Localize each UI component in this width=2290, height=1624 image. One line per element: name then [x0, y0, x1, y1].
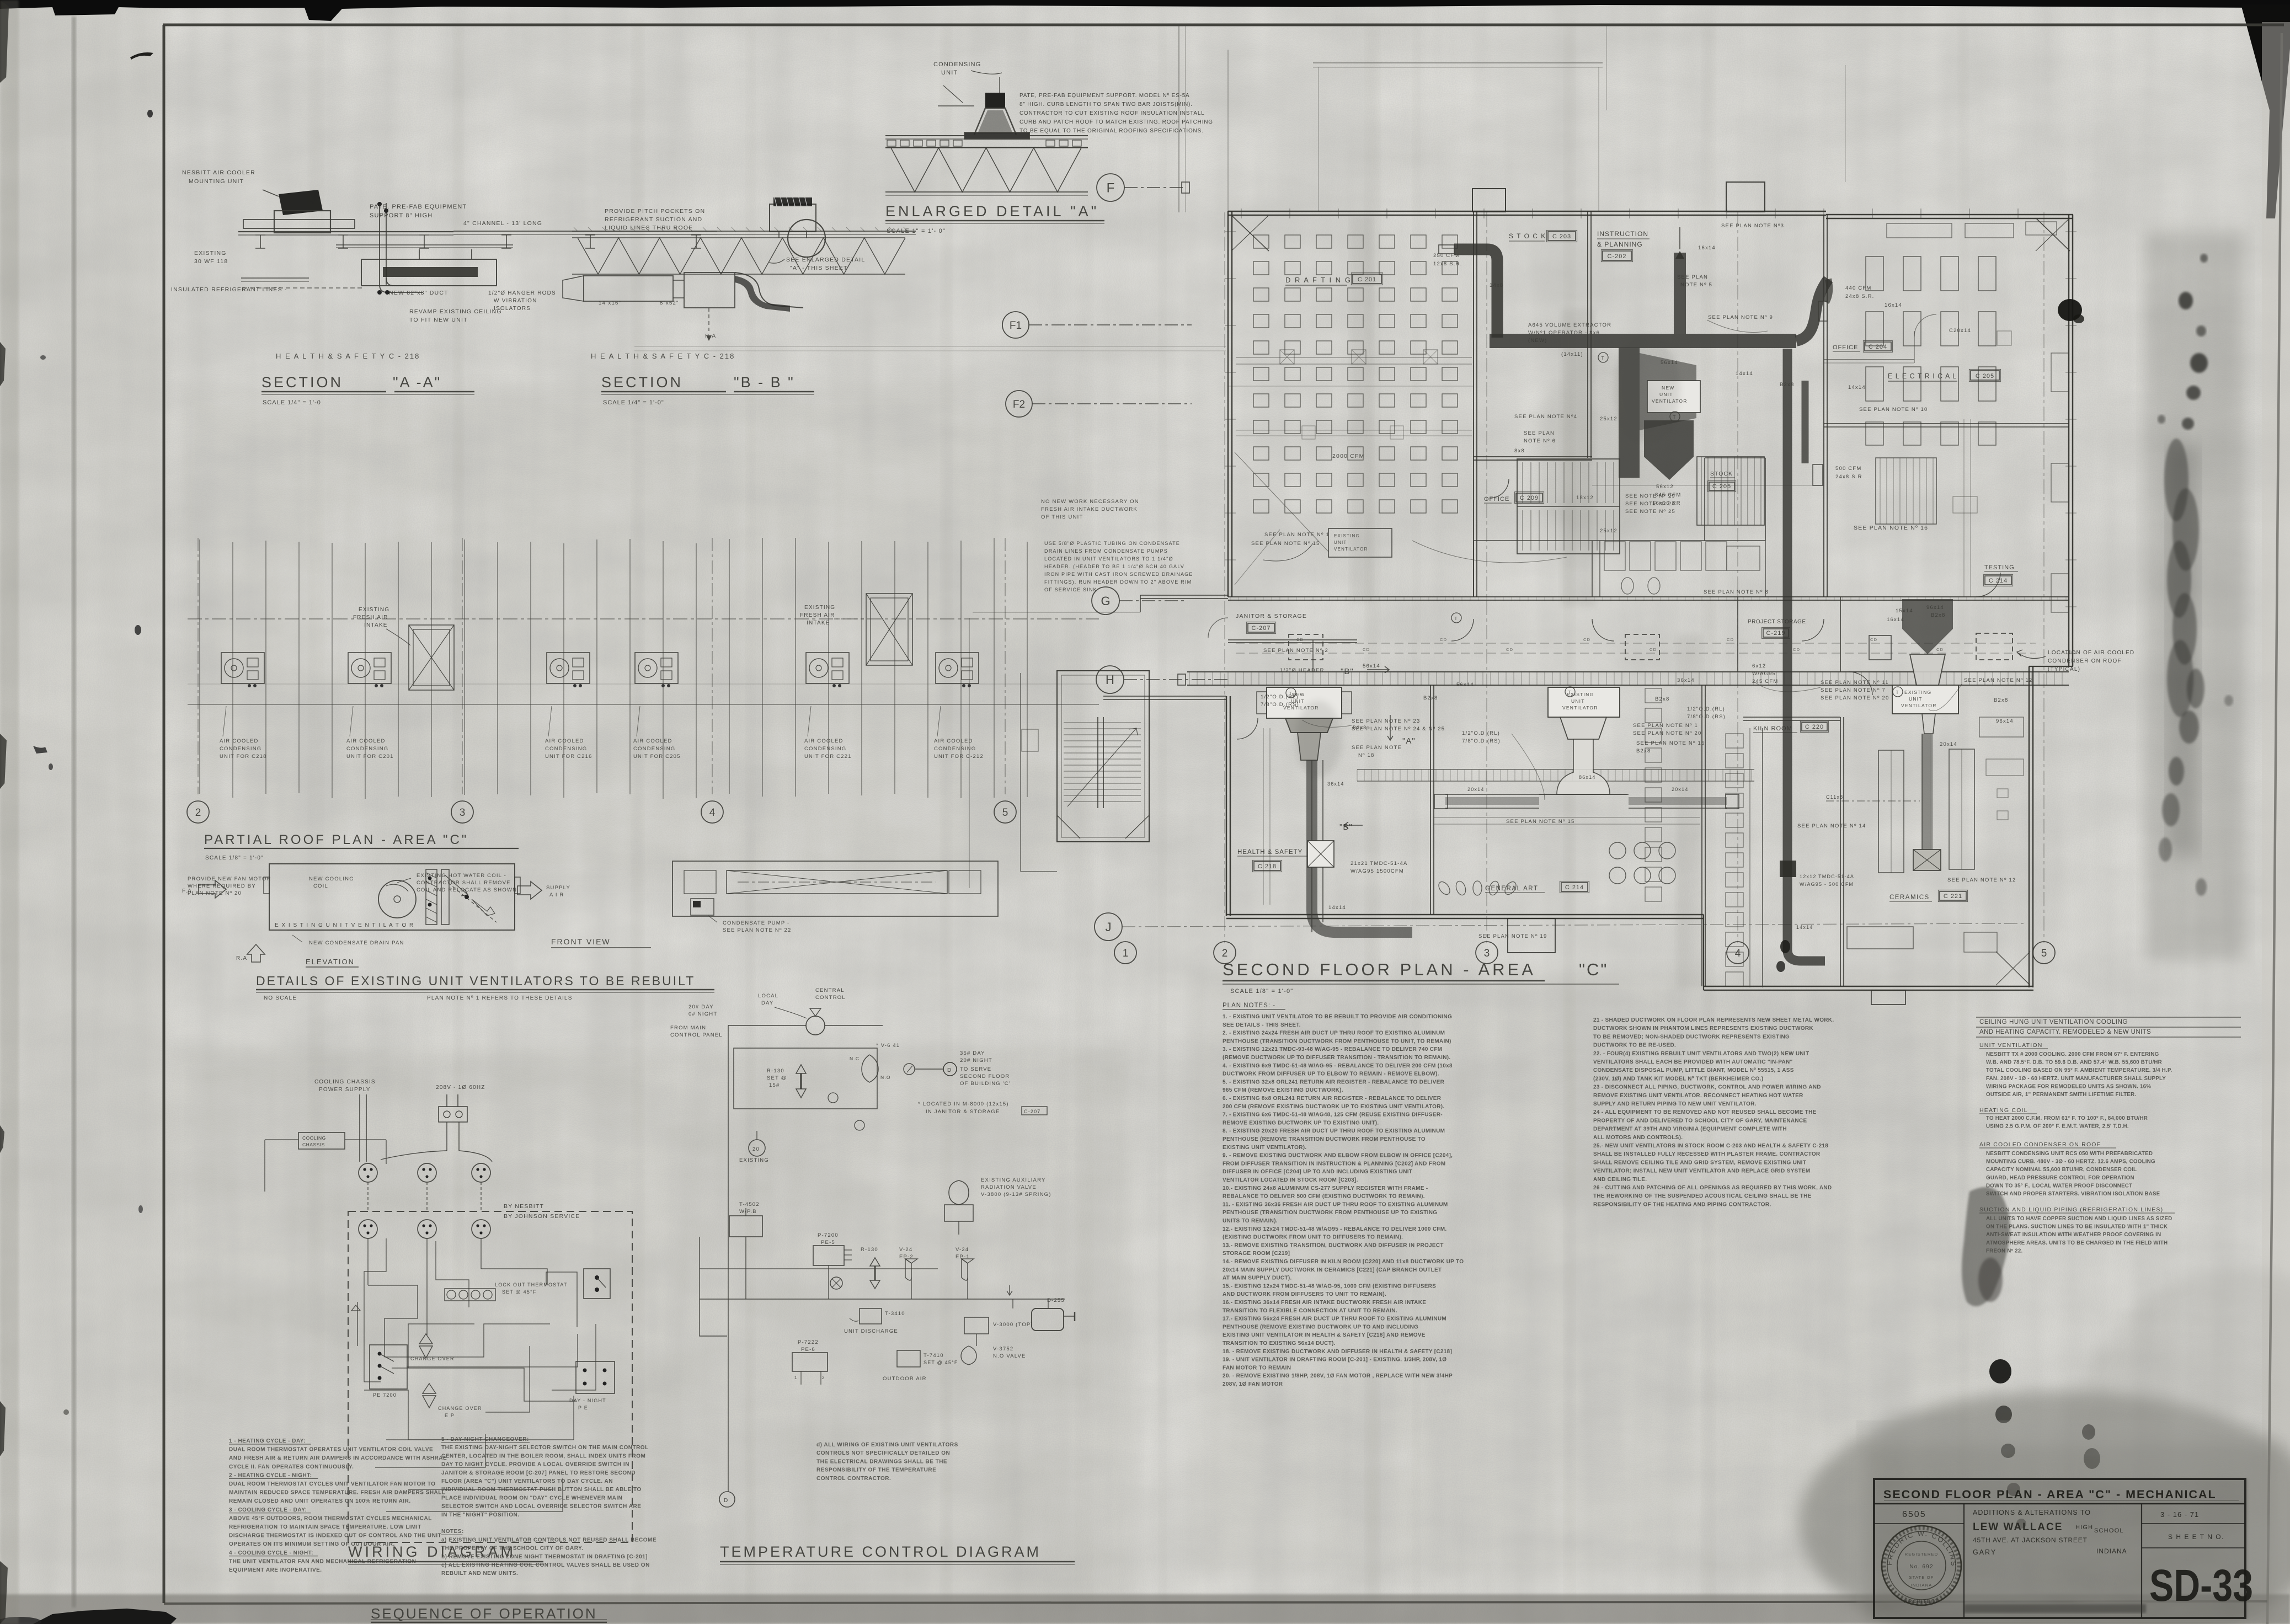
svg-text:C 221: C 221 — [1944, 893, 1962, 900]
svg-text:5 - DAY-NIGHT CHANGEOVER:: 5 - DAY-NIGHT CHANGEOVER: — [441, 1436, 529, 1443]
svg-text:12.- EXISTING 12x24 TMDC-51-4: 12.- EXISTING 12x24 TMDC-51-48 W/AG95 - … — [1223, 1226, 1446, 1232]
svg-text:LOCK OUT THERMOSTAT: LOCK OUT THERMOSTAT — [495, 1282, 568, 1288]
svg-text:PLACE INDIVIDUAL ROOM ON "DAY": PLACE INDIVIDUAL ROOM ON "DAY" CYCLE WHE… — [441, 1495, 622, 1501]
svg-text:1 - HEATING CYCLE - DAY:: 1 - HEATING CYCLE - DAY: — [229, 1438, 306, 1444]
svg-text:CONDENSING: CONDENSING — [346, 746, 388, 752]
svg-text:ABOVE 45°F OUTDOORS, ROOM THER: ABOVE 45°F OUTDOORS, ROOM THERMOSTAT CYC… — [229, 1515, 432, 1521]
svg-text:CD: CD — [1870, 637, 1877, 642]
svg-text:NOTES:: NOTES: — [441, 1529, 464, 1535]
svg-text:C11x8: C11x8 — [1826, 794, 1843, 800]
svg-text:MOUNTING CURB. 480V - 3Ø -: MOUNTING CURB. 480V - 3Ø - 60 HERTZ. 12.… — [1986, 1159, 2155, 1165]
svg-text:INTAKE: INTAKE — [807, 620, 830, 626]
svg-text:C-219: C-219 — [1766, 630, 1786, 637]
svg-text:TRANSITION TO FLEXIBLE CONNECT: TRANSITION TO FLEXIBLE CONNECTION AT UNI… — [1223, 1308, 1397, 1314]
svg-text:LOCAL: LOCAL — [758, 993, 778, 999]
svg-text:CEILING HUNG UNIT VENTILATI: CEILING HUNG UNIT VENTILATION COOLING — [1979, 1019, 2128, 1025]
svg-text:REGISTERED: REGISTERED — [1905, 1552, 1939, 1557]
svg-text:SEE PLAN NOTE Nº 23: SEE PLAN NOTE Nº 23 — [1352, 718, 1420, 724]
svg-text:250 CFM: 250 CFM — [1433, 253, 1459, 259]
svg-text:SUPPLY: SUPPLY — [546, 885, 570, 891]
svg-text:W/P.B: W/P.B — [739, 1209, 757, 1215]
svg-text:THE EXISTING DAY-NIGHT SELECTO: THE EXISTING DAY-NIGHT SELECTOR SWITCH O… — [441, 1445, 649, 1451]
svg-text:UNIT VENTILATION: UNIT VENTILATION — [1979, 1042, 2043, 1049]
svg-text:16x14: 16x14 — [1887, 617, 1904, 623]
svg-text:C-207: C-207 — [1024, 1109, 1041, 1114]
svg-text:C20x14: C20x14 — [1949, 328, 1971, 334]
svg-text:F: F — [1107, 181, 1115, 196]
svg-text:SUPPLY AND RETURN PIPING TO NE: SUPPLY AND RETURN PIPING TO NEW UNIT VEN… — [1593, 1101, 1757, 1107]
svg-text:96x14: 96x14 — [1926, 605, 1944, 611]
svg-text:CONDENSING: CONDENSING — [545, 746, 587, 752]
svg-text:15.- EXISTING 12x24 TMDC-51-4: 15.- EXISTING 12x24 TMDC-51-48 W/AG-95, … — [1223, 1283, 1436, 1289]
svg-text:AND DUCTWORK FROM DIFFUSERS TO: AND DUCTWORK FROM DIFFUSERS TO UNIT TO R… — [1223, 1291, 1386, 1297]
svg-text:P E: P E — [578, 1405, 588, 1411]
svg-text:F2: F2 — [1013, 399, 1025, 410]
svg-text:1: 1 — [1123, 948, 1129, 959]
svg-text:NESBITT CONDENSING UNIT RCS: NESBITT CONDENSING UNIT RCS 050 WITH PRE… — [1986, 1151, 2153, 1157]
svg-text:T: T — [1568, 690, 1572, 695]
svg-text:"B - B ": "B - B " — [734, 374, 795, 391]
svg-text:14x8: 14x8 — [1490, 282, 1503, 289]
svg-text:UNIT FOR C221: UNIT FOR C221 — [804, 754, 852, 760]
svg-text:1: 1 — [794, 1375, 798, 1380]
svg-text:"A": "A" — [1402, 736, 1416, 746]
svg-text:208V - 1Ø 60HZ: 208V - 1Ø 60HZ — [436, 1085, 485, 1091]
svg-text:EXISTING AUXILIARY: EXISTING AUXILIARY — [981, 1177, 1046, 1183]
svg-text:15#: 15# — [769, 1082, 780, 1088]
svg-text:PLAN NOTES: -: PLAN NOTES: - — [1223, 1002, 1275, 1009]
svg-text:1/2"Ø HEADER: 1/2"Ø HEADER — [1280, 667, 1325, 674]
svg-text:GARY: GARY — [1973, 1548, 1997, 1556]
svg-text:ELEVATION: ELEVATION — [306, 958, 355, 966]
svg-text:ALL UNITS TO HAVE COPPER SUCTI: ALL UNITS TO HAVE COPPER SUCTION AND LIQ… — [1986, 1216, 2172, 1222]
svg-text:REFRIGERANT SUCTION AND: REFRIGERANT SUCTION AND — [605, 216, 702, 223]
svg-text:CONTROL PANEL: CONTROL PANEL — [670, 1032, 723, 1038]
svg-text:CONDENSING: CONDENSING — [804, 746, 846, 752]
svg-text:SEE PLAN NOTE Nº 19: SEE PLAN NOTE Nº 19 — [1478, 933, 1547, 939]
svg-text:MOUNTING UNIT: MOUNTING UNIT — [189, 178, 244, 185]
svg-text:CD: CD — [1936, 647, 1944, 652]
svg-text:AND FRESH AIR & RETURN AIR DAM: AND FRESH AIR & RETURN AIR DAMPERS IN AC… — [229, 1455, 447, 1461]
svg-text:CAPACITY NOMINAL 55,600 BTU: CAPACITY NOMINAL 55,600 BTU/HR, CONDENSE… — [1986, 1167, 2137, 1173]
svg-text:2. - EXISTING 24x24 FRESH AIR: 2. - EXISTING 24x24 FRESH AIR DUCT UP TH… — [1223, 1030, 1445, 1037]
svg-text:SHALL REMOVE CEILING TILE AND: SHALL REMOVE CEILING TILE AND GRID SYSTE… — [1593, 1160, 1806, 1166]
svg-text:OFFICE: OFFICE — [1833, 344, 1858, 351]
svg-text:EXISTING: EXISTING — [1904, 690, 1931, 695]
svg-text:1/2"O.D.(RL): 1/2"O.D.(RL) — [1261, 694, 1299, 700]
svg-text:CONTROLS NOT SPECIFICALLY DETA: CONTROLS NOT SPECIFICALLY DETAILED ON — [816, 1450, 950, 1456]
svg-text:ATMOSPHERE AREAS. UNITS TO BE: ATMOSPHERE AREAS. UNITS TO BE CHARGED IN… — [1986, 1240, 2168, 1246]
svg-text:SEE PLAN NOTE Nº 22: SEE PLAN NOTE Nº 22 — [723, 927, 791, 933]
svg-text:NEW COOLING: NEW COOLING — [309, 876, 354, 882]
svg-text:REBUILT AND NEW UNITS.: REBUILT AND NEW UNITS. — [441, 1570, 518, 1577]
svg-text:SCALE 1/8" = 1'-0": SCALE 1/8" = 1'-0" — [1230, 988, 1293, 995]
svg-text:SD-33: SD-33 — [2149, 1561, 2253, 1611]
svg-text:COIL: COIL — [313, 883, 328, 889]
svg-text:IN JANITOR & STORAGE: IN JANITOR & STORAGE — [926, 1109, 1000, 1115]
svg-text:"B": "B" — [1341, 667, 1354, 676]
svg-text:UNIT: UNIT — [1334, 540, 1347, 545]
svg-text:SECTION: SECTION — [601, 374, 683, 391]
svg-text:PATE, PRE-FAB EQUIPMENT SUPPOR: PATE, PRE-FAB EQUIPMENT SUPPORT. MODEL N… — [1019, 93, 1190, 99]
svg-text:14x14: 14x14 — [1736, 371, 1753, 377]
svg-text:7/8"O.D.(RS): 7/8"O.D.(RS) — [1261, 702, 1299, 708]
svg-text:INDIANA: INDIANA — [2096, 1547, 2127, 1555]
svg-text:36x14: 36x14 — [1327, 781, 1344, 787]
svg-text:PE 7200: PE 7200 — [373, 1392, 397, 1398]
svg-text:SEE PLAN NOTE Nº3: SEE PLAN NOTE Nº3 — [1721, 223, 1784, 229]
svg-text:CONTRACTOR TO CUT EXISTING ROO: CONTRACTOR TO CUT EXISTING ROOF INSULATI… — [1019, 110, 1205, 116]
svg-text:LEW WALLACE: LEW WALLACE — [1973, 1521, 2063, 1533]
svg-text:21x21 TMDC-51-4A: 21x21 TMDC-51-4A — [1350, 861, 1408, 867]
svg-text:CD: CD — [1583, 637, 1590, 642]
svg-text:AND CEILING TILE.: AND CEILING TILE. — [1593, 1177, 1647, 1183]
svg-text:SET @ 45°F: SET @ 45°F — [502, 1289, 537, 1295]
svg-text:NEW CONDENSATE DRAIN PAN: NEW CONDENSATE DRAIN PAN — [309, 940, 404, 946]
svg-text:SEE PLAN NOTE Nº 20: SEE PLAN NOTE Nº 20 — [1821, 695, 1889, 701]
svg-text:OUTSIDE AIR, 1" PERMANENT S: OUTSIDE AIR, 1" PERMANENT SMITH LIFETIME… — [1986, 1092, 2136, 1098]
svg-text:NESBITT TX # 2000 COOLING. 2: NESBITT TX # 2000 COOLING. 2000 CFM FROM… — [1986, 1051, 2159, 1057]
svg-text:REVAMP EXISTING CEILING: REVAMP EXISTING CEILING — [409, 308, 502, 315]
svg-text:USE 5/8"Ø PLASTIC TUBING ON CO: USE 5/8"Ø PLASTIC TUBING ON CONDENSATE — [1044, 541, 1180, 546]
svg-text:2: 2 — [1222, 948, 1228, 959]
svg-text:Nº 18: Nº 18 — [1358, 752, 1375, 758]
svg-text:20# DAY: 20# DAY — [688, 1004, 714, 1010]
svg-text:DUCTWORK FROM DIFFUSER UP TO E: DUCTWORK FROM DIFFUSER UP TO ELBOW TO RE… — [1223, 1071, 1439, 1077]
svg-text:T-4502: T-4502 — [739, 1201, 760, 1208]
svg-text:PROPERTY OF AND DELIVERED TO S: PROPERTY OF AND DELIVERED TO SCHOOL CITY… — [1593, 1118, 1807, 1124]
svg-text:B2x8: B2x8 — [1655, 696, 1669, 702]
svg-text:FLOOR (AREA "C") UNIT VENTILAT: FLOOR (AREA "C") UNIT VENTILATORS TO DAY… — [441, 1478, 613, 1484]
svg-text:OF SERVICE SINK.: OF SERVICE SINK. — [1044, 587, 1099, 592]
svg-text:SEE PLAN NOTE Nº 12: SEE PLAN NOTE Nº 12 — [1964, 677, 2032, 683]
svg-text:"A" - THIS SHEET: "A" - THIS SHEET — [790, 265, 848, 271]
svg-text:SWITCH AND PROPER STARTERS.: SWITCH AND PROPER STARTERS. VIBRATION IS… — [1986, 1191, 2160, 1197]
svg-text:"C": "C" — [1579, 960, 1608, 979]
svg-text:12x8 S.R.: 12x8 S.R. — [1433, 261, 1462, 267]
svg-text:TO BE REMOVED; NON-SHADED DUCT: TO BE REMOVED; NON-SHADED DUCTWORK REPRE… — [1593, 1034, 1790, 1040]
svg-text:3 - COOLING CYCLE - DAY:: 3 - COOLING CYCLE - DAY: — [229, 1507, 307, 1513]
svg-text:CHANGE OVER: CHANGE OVER — [410, 1356, 455, 1361]
svg-text:CONTRACTOR SHALL REMOVE: CONTRACTOR SHALL REMOVE — [417, 880, 511, 886]
svg-text:THE REWORKING OF THE SUSPENDED: THE REWORKING OF THE SUSPENDED ACOUSTICA… — [1593, 1193, 1812, 1199]
svg-text:DRAIN LINES FROM CONDENSATE PU: DRAIN LINES FROM CONDENSATE PUMPS — [1044, 548, 1168, 554]
svg-text:DIFFUSER IN OFFICE [C204] UP T: DIFFUSER IN OFFICE [C204] UP TO AND INCL… — [1223, 1169, 1412, 1175]
svg-text:5: 5 — [1002, 807, 1008, 819]
svg-text:HIGH: HIGH — [2075, 1524, 2093, 1531]
svg-text:T: T — [1896, 690, 1899, 695]
svg-text:FROM MAIN: FROM MAIN — [670, 1025, 706, 1031]
svg-text:SCALE 1/8" = 1'-0": SCALE 1/8" = 1'-0" — [205, 855, 264, 861]
svg-text:EXISTING UNIT VENTILATOR IN HE: EXISTING UNIT VENTILATOR IN HEALTH & SAF… — [1223, 1332, 1426, 1338]
svg-text:FAN. 208V - 1Ø - 60 HERTZ.: FAN. 208V - 1Ø - 60 HERTZ. UNIT MANUFACT… — [1986, 1076, 2166, 1082]
svg-text:8" HIGH. CURB LENGTH TO SPAN T: 8" HIGH. CURB LENGTH TO SPAN TWO BAR JOI… — [1019, 101, 1193, 108]
svg-text:CD: CD — [1506, 647, 1513, 652]
svg-text:EQUIPMENT ARE INOPERATIVE.: EQUIPMENT ARE INOPERATIVE. — [229, 1567, 322, 1573]
svg-text:SEE PLAN NOTE Nº 9: SEE PLAN NOTE Nº 9 — [1708, 314, 1773, 320]
svg-text:PENTHOUSE (REMOVE EXISTING DUC: PENTHOUSE (REMOVE EXISTING DUCTWORK UP T… — [1223, 1324, 1418, 1330]
svg-text:245 CFM: 245 CFM — [1752, 679, 1778, 685]
svg-text:5: 5 — [2041, 948, 2047, 959]
svg-text:REMOVE EXISTING UNIT VENTILATO: REMOVE EXISTING UNIT VENTILATOR. RECONNE… — [1593, 1093, 1803, 1099]
svg-text:CONDENSING: CONDENSING — [633, 746, 675, 752]
svg-text:COIL AND RELOCATE AS SHOWN: COIL AND RELOCATE AS SHOWN — [417, 887, 517, 893]
svg-text:45TH AVE. AT JACKSON STR: 45TH AVE. AT JACKSON STREET — [1973, 1536, 2088, 1544]
svg-text:3. - EXISTING 12x21 TMDC-93-: 3. - EXISTING 12x21 TMDC-93-48 W/AG-95 -… — [1223, 1046, 1442, 1053]
svg-text:(EXISTING DUCTWORK FROM UNIT T: (EXISTING DUCTWORK FROM UNIT TO DIFFUSER… — [1223, 1235, 1403, 1241]
svg-text:OF THIS UNIT: OF THIS UNIT — [1041, 514, 1083, 520]
svg-text:SCHOOL: SCHOOL — [2094, 1527, 2124, 1534]
svg-text:REBALANCE TO DELIVER 500 CFM (: REBALANCE TO DELIVER 500 CFM (EXISTING D… — [1223, 1194, 1425, 1200]
svg-text:TO BE EQUAL TO THE ORIGINAL RO: TO BE EQUAL TO THE ORIGINAL ROOFING SPEC… — [1019, 128, 1204, 134]
svg-text:18. - REMOVE EXISTING DUCTWORK: 18. - REMOVE EXISTING DUCTWORK AND DIFFU… — [1223, 1349, 1452, 1355]
svg-text:SEE PLAN NOTE Nº 14: SEE PLAN NOTE Nº 14 — [1797, 823, 1866, 829]
svg-text:6505: 6505 — [1902, 1510, 1926, 1519]
svg-text:16x16 RR: 16x16 RR — [1652, 500, 1681, 506]
svg-text:CHANGE OVER: CHANGE OVER — [438, 1406, 482, 1411]
svg-text:COOLING CHASSIS: COOLING CHASSIS — [314, 1079, 376, 1085]
svg-text:INDIANA: INDIANA — [1911, 1583, 1933, 1588]
svg-text:12x12 TMDC-51-4A: 12x12 TMDC-51-4A — [1800, 874, 1854, 879]
svg-text:3: 3 — [1484, 948, 1490, 959]
svg-text:SECTION: SECTION — [261, 374, 343, 391]
svg-text:208V, 1Ø FAN MOTOR: 208V, 1Ø FAN MOTOR — [1223, 1381, 1283, 1387]
svg-text:T: T — [1455, 616, 1458, 621]
svg-text:a) EXISTING UNIT VENTILATOR CO: a) EXISTING UNIT VENTILATOR CONTROLS NOT… — [441, 1537, 656, 1543]
svg-text:INSULATED REFRIGERANT LINES -: INSULATED REFRIGERANT LINES - — [171, 286, 287, 293]
svg-text:SEE PLAN: SEE PLAN — [1677, 274, 1708, 280]
svg-text:C 205: C 205 — [1712, 483, 1731, 490]
svg-text:DUCTWORK TO BE RE-USED.: DUCTWORK TO BE RE-USED. — [1593, 1043, 1676, 1049]
svg-text:56x14: 56x14 — [1363, 663, 1380, 669]
svg-text:D-255: D-255 — [1047, 1297, 1065, 1304]
svg-text:25.- NEW UNIT VENTILATORS IN S: 25.- NEW UNIT VENTILATORS IN STOCK ROOM … — [1593, 1143, 1828, 1149]
svg-text:20# NIGHT: 20# NIGHT — [960, 1057, 992, 1064]
svg-text:UNIT FOR C201: UNIT FOR C201 — [346, 754, 394, 760]
svg-text:8"x52": 8"x52" — [660, 300, 679, 306]
svg-text:C 218: C 218 — [1258, 863, 1277, 870]
svg-text:"A -A": "A -A" — [393, 374, 441, 391]
svg-text:14x14: 14x14 — [1328, 905, 1346, 911]
svg-text:VENTILATOR LOCATED IN STOCK RO: VENTILATOR LOCATED IN STOCK ROOM [C203]. — [1223, 1177, 1358, 1183]
svg-text:SET @ 45°F: SET @ 45°F — [924, 1360, 958, 1365]
svg-text:IRON PIPE WITH CAST IRON SCREW: IRON PIPE WITH CAST IRON SCREWED DRAINAG… — [1044, 571, 1193, 577]
svg-text:3: 3 — [460, 807, 466, 819]
svg-text:SEE PLAN NOTE Nº 11: SEE PLAN NOTE Nº 11 — [1821, 680, 1889, 686]
svg-text:PROJECT STORAGE: PROJECT STORAGE — [1748, 619, 1806, 625]
svg-text:4: 4 — [709, 807, 716, 819]
svg-text:AIR COOLED: AIR COOLED — [934, 738, 973, 744]
svg-text:ADDITIONS & ALTERATIONS TO: ADDITIONS & ALTERATIONS TO — [1973, 1509, 2091, 1516]
svg-text:B2x8: B2x8 — [1780, 382, 1794, 388]
svg-text:CURB AND PATCH ROOF TO MATCH E: CURB AND PATCH ROOF TO MATCH EXISTING. R… — [1019, 119, 1213, 125]
svg-text:HEATING COIL: HEATING COIL — [1979, 1107, 2028, 1114]
svg-text:500 CFM: 500 CFM — [1835, 466, 1861, 472]
svg-text:E X I S T I N G U N I T V E: E X I S T I N G U N I T V E N T I L A T … — [275, 922, 414, 928]
svg-text:DISCHARGE THERMOSTAT IS INDEXE: DISCHARGE THERMOSTAT IS INDEXED OUT OF C… — [229, 1533, 441, 1539]
svg-text:TOTAL COOLING BASED ON 95° F.: TOTAL COOLING BASED ON 95° F. AMBIENT TE… — [1986, 1067, 2172, 1073]
svg-text:20x14: 20x14 — [1940, 741, 1957, 747]
svg-text:ANTI-SWEAT INSULATION WITH WEA: ANTI-SWEAT INSULATION WITH WEATHER PROOF… — [1986, 1232, 2161, 1238]
svg-text:V-24: V-24 — [955, 1247, 969, 1253]
svg-text:V-3800 (9-13# SPRING): V-3800 (9-13# SPRING) — [981, 1192, 1051, 1198]
svg-text:TRANSITION TO EXISTING 56x14 D: TRANSITION TO EXISTING 56x14 DUCT). — [1223, 1340, 1336, 1347]
svg-text:C 214: C 214 — [1565, 884, 1584, 891]
svg-text:EXISTING: EXISTING — [359, 607, 389, 613]
svg-text:CERAMICS: CERAMICS — [1889, 894, 1930, 901]
svg-text:LOCATION OF AIR COOLED: LOCATION OF AIR COOLED — [2048, 650, 2134, 656]
svg-text:17.- EXISTING 56x24 FRESH AIR: 17.- EXISTING 56x24 FRESH AIR DUCT UP TH… — [1223, 1316, 1446, 1322]
svg-text:UNIT: UNIT — [1909, 696, 1923, 702]
svg-text:R.A: R.A — [236, 955, 247, 961]
svg-text:PROVIDE PITCH POCKETS ON: PROVIDE PITCH POCKETS ON — [605, 208, 705, 215]
svg-text:20x14: 20x14 — [1467, 787, 1485, 792]
svg-text:FROM DIFFUSER TRANSITION IN IN: FROM DIFFUSER TRANSITION IN INSTRUCTION … — [1223, 1161, 1445, 1167]
svg-text:96x14: 96x14 — [1996, 718, 2014, 724]
svg-text:W/AG95 - 500 CFM: W/AG95 - 500 CFM — [1800, 882, 1854, 887]
svg-text:WIRING PACKAGE FOR REMODELE: WIRING PACKAGE FOR REMODELED UNITS AS SH… — [1986, 1083, 2151, 1089]
svg-text:SET @: SET @ — [767, 1075, 787, 1081]
svg-text:SEE PLAN NOTE Nº 1: SEE PLAN NOTE Nº 1 — [1264, 532, 1330, 538]
svg-text:(230V, 1Ø) AND TANK KIT MODEL: (230V, 1Ø) AND TANK KIT MODEL Nº TKT (BE… — [1593, 1076, 1763, 1082]
svg-text:A I R: A I R — [549, 892, 564, 898]
svg-text:DUCTWORK SHOWN IN PHANTOM LINE: DUCTWORK SHOWN IN PHANTOM LINES REPRESEN… — [1593, 1025, 1813, 1032]
svg-text:PE-5: PE-5 — [821, 1240, 835, 1246]
svg-text:UNIT: UNIT — [941, 70, 958, 76]
svg-text:EXISTING: EXISTING — [739, 1157, 769, 1163]
svg-text:POWER SUPPLY: POWER SUPPLY — [319, 1087, 371, 1093]
svg-text:1/2"Ø HANGER RODS: 1/2"Ø HANGER RODS — [488, 290, 556, 296]
svg-text:30 WF 118: 30 WF 118 — [194, 258, 228, 265]
svg-text:V-3752: V-3752 — [993, 1346, 1013, 1352]
svg-text:RADIATION VALVE: RADIATION VALVE — [981, 1184, 1037, 1190]
svg-text:SHALL BE INSTALLED FULLY RECES: SHALL BE INSTALLED FULLY RECESSED WITH P… — [1593, 1151, 1821, 1157]
svg-text:c) ALL EXISTING HEATING COIL C: c) ALL EXISTING HEATING COIL CONTROL VAL… — [441, 1562, 650, 1568]
svg-text:THE PROPERTY OF THE SCHOOL CIT: THE PROPERTY OF THE SCHOOL CITY OF GARY. — [441, 1546, 583, 1552]
svg-text:AIR COOLED: AIR COOLED — [346, 738, 386, 744]
svg-text:NO NEW WORK NECESSARY ON: NO NEW WORK NECESSARY ON — [1041, 499, 1139, 505]
svg-text:D R A F T I N G: D R A F T I N G — [1285, 276, 1352, 284]
svg-text:UNIT: UNIT — [1571, 698, 1585, 704]
svg-text:INSTRUCTION: INSTRUCTION — [1597, 230, 1648, 238]
svg-text:14.- REMOVE EXISTING DIFFUSER: 14.- REMOVE EXISTING DIFFUSER IN KILN RO… — [1223, 1259, 1464, 1265]
svg-text:200 CFM (REMOVE EXISTING DUCTW: 200 CFM (REMOVE EXISTING DUCTWORK UP TO … — [1223, 1104, 1444, 1110]
svg-text:23 - DISCONNECT ALL PIPING, DU: 23 - DISCONNECT ALL PIPING, DUCTWORK, CO… — [1593, 1085, 1821, 1091]
svg-text:THE UNIT VENTILATOR FAN AND ME: THE UNIT VENTILATOR FAN AND MECHANICAL R… — [229, 1558, 416, 1564]
svg-text:T-7410: T-7410 — [924, 1353, 944, 1359]
svg-text:& PLANNING: & PLANNING — [1597, 241, 1643, 248]
svg-text:UNITS TO REMAIN).: UNITS TO REMAIN). — [1223, 1218, 1278, 1224]
svg-text:ENLARGED DETAIL "A": ENLARGED DETAIL "A" — [885, 203, 1099, 220]
svg-text:SCALE 1/4" = 1'-0": SCALE 1/4" = 1'-0" — [603, 399, 664, 406]
svg-text:C 203: C 203 — [1552, 233, 1571, 240]
svg-text:ARCHITECT: ARCHITECT — [1904, 1599, 1939, 1604]
svg-text:PATE, PRE-FAB EQUIPMENT: PATE, PRE-FAB EQUIPMENT — [370, 204, 467, 210]
svg-text:SECOND FLOOR: SECOND FLOOR — [960, 1073, 1010, 1080]
svg-text:E P: E P — [445, 1413, 455, 1418]
svg-text:SEE PLAN NOTE: SEE PLAN NOTE — [1352, 745, 1402, 751]
svg-text:C 220: C 220 — [1805, 724, 1824, 730]
svg-text:JANITOR & STORAGE ROOM [C-207]: JANITOR & STORAGE ROOM [C-207] PANEL TO … — [441, 1470, 636, 1476]
svg-text:UNIT FOR C205: UNIT FOR C205 — [633, 754, 681, 760]
svg-text:EXISTING: EXISTING — [804, 605, 835, 611]
svg-text:2: 2 — [195, 807, 201, 819]
svg-text:SEE PLAN NOTE Nº 12: SEE PLAN NOTE Nº 12 — [1947, 877, 2016, 883]
svg-text:965 CFM (REMOVE EXISTING DUCTW: 965 CFM (REMOVE EXISTING DUCTWORK). — [1223, 1087, 1343, 1093]
svg-text:BY JOHNSON SERVICE: BY JOHNSON SERVICE — [504, 1213, 580, 1220]
svg-text:b) REMOVE EXISTING ZONE NIGHT: b) REMOVE EXISTING ZONE NIGHT THERMOSTAT… — [441, 1554, 648, 1560]
svg-text:T: T — [1289, 691, 1293, 696]
svg-text:2: 2 — [822, 1375, 825, 1380]
svg-text:56x14: 56x14 — [1456, 682, 1474, 688]
svg-text:CONDENSING: CONDENSING — [933, 61, 981, 68]
svg-text:TEMPERATURE CONTROL DIAGRAM: TEMPERATURE CONTROL DIAGRAM — [720, 1543, 1041, 1560]
svg-text:440 CFM: 440 CFM — [1845, 285, 1871, 291]
svg-text:GENERAL ART: GENERAL ART — [1485, 885, 1538, 892]
svg-text:W.B. AND 78.5°F. D.B. TO 59.6: W.B. AND 78.5°F. D.B. TO 59.6 D.B. AND 5… — [1986, 1060, 2162, 1066]
svg-text:SUPPORT 8" HIGH: SUPPORT 8" HIGH — [370, 212, 433, 219]
svg-text:FITTINGS). RUN HEADER DOWN TO: FITTINGS). RUN HEADER DOWN TO 2" ABOVE R… — [1044, 579, 1192, 585]
svg-text:6. - EXISTING 8x8 ORL241 RETU: 6. - EXISTING 8x8 ORL241 RETURN AIR REGI… — [1223, 1096, 1442, 1102]
svg-text:FRONT VIEW: FRONT VIEW — [551, 937, 611, 946]
svg-text:CHASSIS: CHASSIS — [302, 1142, 325, 1147]
svg-text:B2x8: B2x8 — [1423, 695, 1438, 701]
svg-text:FRESH AIR: FRESH AIR — [353, 615, 388, 621]
svg-text:USING 2.5 G.P.M. OF 200° F: USING 2.5 G.P.M. OF 200° F. E.M.T. WATER… — [1986, 1124, 2129, 1130]
svg-text:7. - EXISTING 6x6 TMDC-51-48: 7. - EXISTING 6x6 TMDC-51-48 W/AG48, 125… — [1223, 1112, 1443, 1118]
svg-text:CONDENSATE PUMP -: CONDENSATE PUMP - — [723, 920, 789, 926]
svg-text:0# NIGHT: 0# NIGHT — [688, 1011, 717, 1017]
svg-text:8x8: 8x8 — [1514, 448, 1525, 454]
svg-text:AIR COOLED: AIR COOLED — [545, 738, 584, 744]
svg-text:CONTROL: CONTROL — [815, 995, 846, 1001]
svg-text:N.O: N.O — [880, 1075, 891, 1080]
svg-text:AT MAIN SUPPLY DUCT).: AT MAIN SUPPLY DUCT). — [1223, 1275, 1292, 1281]
svg-text:COOLING: COOLING — [302, 1135, 326, 1141]
svg-text:G: G — [1101, 594, 1110, 608]
svg-text:PE-6: PE-6 — [801, 1347, 815, 1353]
svg-text:TO FIT NEW UNIT: TO FIT NEW UNIT — [409, 317, 468, 323]
svg-text:20. - REMOVE EXISTING 1/8HP,: 20. - REMOVE EXISTING 1/8HP, 208V, 1Ø FA… — [1223, 1373, 1453, 1379]
svg-text:V-24: V-24 — [899, 1247, 912, 1253]
svg-text:CD: CD — [1440, 637, 1447, 642]
svg-text:SEE DETAILS - THIS SHEET.: SEE DETAILS - THIS SHEET. — [1223, 1022, 1301, 1028]
svg-text:1. - EXISTING UNIT VENTILATOR: 1. - EXISTING UNIT VENTILATOR TO BE REBU… — [1223, 1014, 1452, 1020]
svg-text:E L E C T R I C A L: E L E C T R I C A L — [1888, 372, 1957, 380]
svg-text:14x14: 14x14 — [1848, 384, 1866, 391]
svg-text:CONDENSATE DISPOSAL PUMP, LITT: CONDENSATE DISPOSAL PUMP, LITTLE GIANT, … — [1593, 1067, 1794, 1073]
svg-text:16x14: 16x14 — [1698, 245, 1716, 251]
svg-text:TO SERVE: TO SERVE — [960, 1066, 991, 1072]
svg-text:R-130: R-130 — [767, 1068, 784, 1074]
svg-text:16x14: 16x14 — [1885, 302, 1902, 308]
svg-text:SEE PLAN NOTE Nº 2: SEE PLAN NOTE Nº 2 — [1263, 648, 1328, 654]
svg-text:PENTHOUSE (TRANSITION DUCTWORK: PENTHOUSE (TRANSITION DUCTWORK FROM PENT… — [1223, 1210, 1437, 1216]
svg-text:D: D — [724, 1498, 728, 1504]
svg-text:OF BUILDING 'C': OF BUILDING 'C' — [960, 1081, 1011, 1087]
svg-text:PENTHOUSE (TRANSITION DUCTWORK: PENTHOUSE (TRANSITION DUCTWORK FROM PENT… — [1223, 1038, 1451, 1044]
svg-text:ALL MOTORS AND CONTROLS).: ALL MOTORS AND CONTROLS). — [1593, 1135, 1683, 1141]
svg-text:2 - HEATING CYCLE - NIGHT:: 2 - HEATING CYCLE - NIGHT: — [229, 1472, 312, 1478]
svg-text:14"x16": 14"x16" — [599, 300, 621, 306]
svg-text:W/AG95 1500CFM: W/AG95 1500CFM — [1350, 868, 1404, 874]
svg-text:14x14: 14x14 — [1796, 925, 1813, 930]
svg-text:CENTER, LOCATED IN THE BOILER: CENTER, LOCATED IN THE BOILER ROOM, SHAL… — [441, 1453, 645, 1459]
svg-text:GUARD, HEAD PRESSURE CONTR: GUARD, HEAD PRESSURE CONTROL FOR OPERATI… — [1986, 1175, 2134, 1181]
svg-text:LOCATED IN UNIT VENTILATORS TO: LOCATED IN UNIT VENTILATORS TO 1 1/4"Ø — [1044, 556, 1173, 562]
svg-text:F1: F1 — [1010, 320, 1022, 332]
svg-text:RESPONSIBILITY OF THE TEMPERAT: RESPONSIBILITY OF THE TEMPERATURE — [816, 1467, 936, 1473]
